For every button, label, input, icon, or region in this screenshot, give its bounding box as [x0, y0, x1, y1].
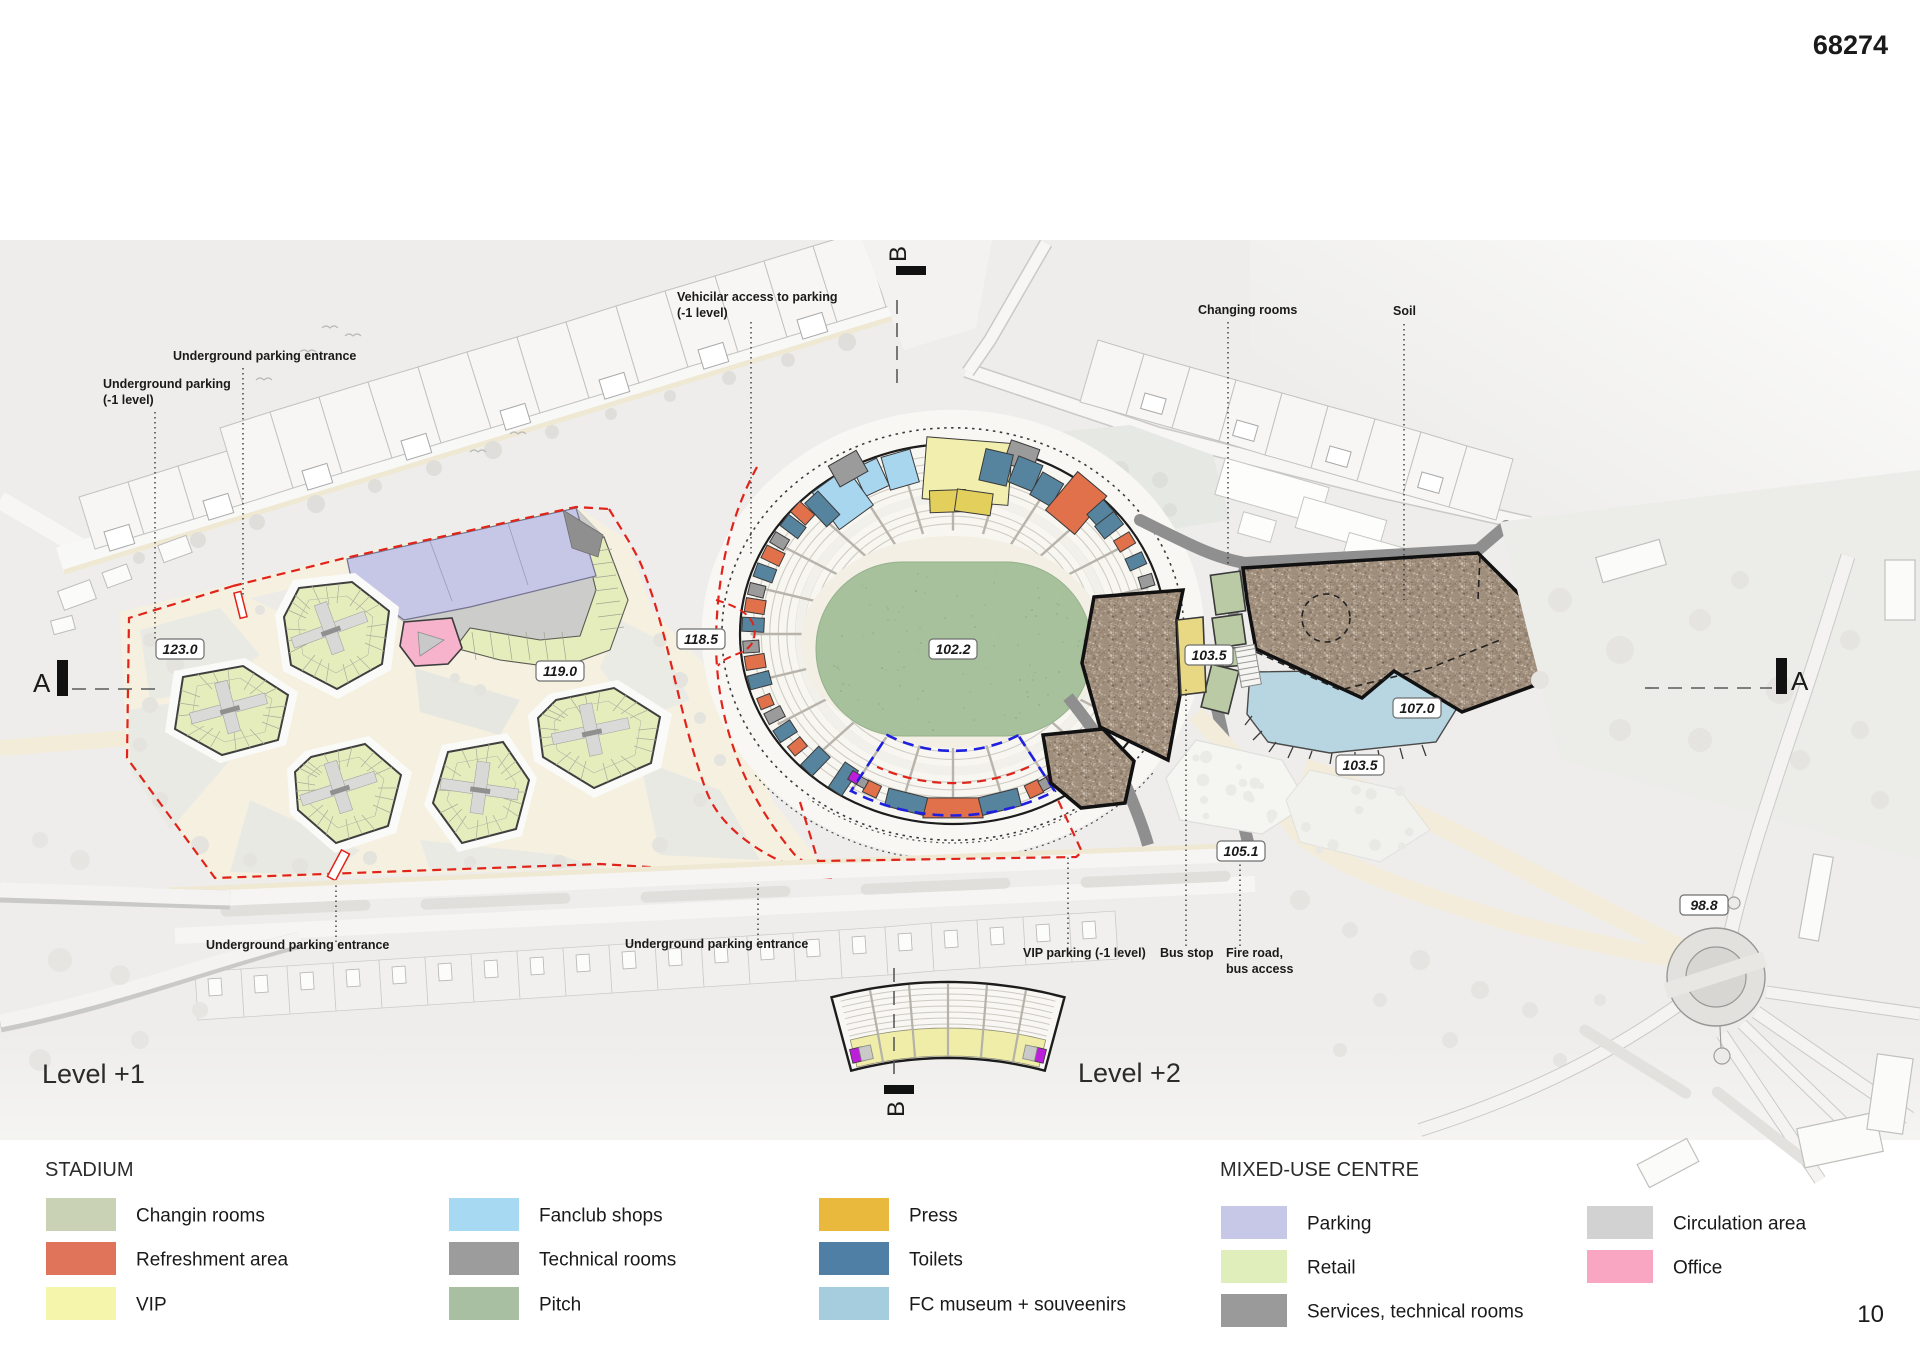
svg-text:103.5: 103.5: [1191, 647, 1226, 663]
svg-text:Toilets: Toilets: [909, 1250, 963, 1271]
svg-text:A: A: [1791, 666, 1809, 696]
svg-text:A: A: [33, 668, 51, 698]
svg-text:118.5: 118.5: [684, 631, 718, 647]
svg-text:STADIUM: STADIUM: [45, 1159, 134, 1181]
svg-text:Changin rooms: Changin rooms: [136, 1206, 265, 1227]
svg-text:Retail: Retail: [1307, 1258, 1356, 1279]
svg-text:Underground parking entrance: Underground parking entrance: [625, 937, 808, 951]
svg-text:Press: Press: [909, 1206, 958, 1227]
svg-text:Refreshment area: Refreshment area: [136, 1250, 289, 1271]
svg-text:Underground parking entrance: Underground parking entrance: [206, 938, 389, 952]
svg-text:(-1 level): (-1 level): [677, 306, 728, 320]
svg-text:Soil: Soil: [1393, 304, 1416, 318]
svg-text:98.8: 98.8: [1690, 897, 1717, 913]
svg-text:FC museum + souveenirs: FC museum + souveenirs: [909, 1295, 1126, 1316]
svg-text:Fire road,: Fire road,: [1226, 946, 1283, 960]
svg-text:Services, technical rooms: Services, technical rooms: [1307, 1302, 1523, 1323]
svg-text:Underground parking: Underground parking: [103, 377, 231, 391]
svg-text:10: 10: [1857, 1301, 1884, 1328]
svg-text:MIXED-USE CENTRE: MIXED-USE CENTRE: [1220, 1159, 1419, 1181]
svg-text:bus access: bus access: [1226, 962, 1293, 976]
svg-text:68274: 68274: [1813, 30, 1888, 60]
svg-text:Vehicilar access to parking: Vehicilar access to parking: [677, 290, 838, 304]
svg-text:VIP parking (-1 level): VIP parking (-1 level): [1023, 946, 1146, 960]
svg-text:Underground parking entrance: Underground parking entrance: [173, 349, 356, 363]
svg-text:B: B: [883, 1101, 910, 1117]
svg-text:Level +1: Level +1: [42, 1059, 145, 1089]
svg-text:Bus stop: Bus stop: [1160, 946, 1214, 960]
svg-text:107.0: 107.0: [1399, 700, 1434, 716]
svg-text:Fanclub shops: Fanclub shops: [539, 1206, 663, 1227]
svg-text:Pitch: Pitch: [539, 1295, 581, 1316]
svg-text:103.5: 103.5: [1342, 757, 1377, 773]
svg-text:123.0: 123.0: [162, 641, 197, 657]
svg-text:105.1: 105.1: [1223, 843, 1258, 859]
svg-text:Changing rooms: Changing rooms: [1198, 303, 1297, 317]
svg-text:Level +2: Level +2: [1078, 1058, 1181, 1088]
svg-text:Circulation area: Circulation area: [1673, 1214, 1806, 1235]
svg-text:119.0: 119.0: [543, 663, 577, 679]
svg-text:102.2: 102.2: [935, 641, 970, 657]
svg-text:Office: Office: [1673, 1258, 1722, 1279]
svg-text:B: B: [885, 246, 912, 262]
svg-text:VIP: VIP: [136, 1295, 167, 1316]
svg-text:(-1 level): (-1 level): [103, 393, 154, 407]
svg-text:Technical rooms: Technical rooms: [539, 1250, 676, 1271]
svg-text:Parking: Parking: [1307, 1214, 1371, 1235]
